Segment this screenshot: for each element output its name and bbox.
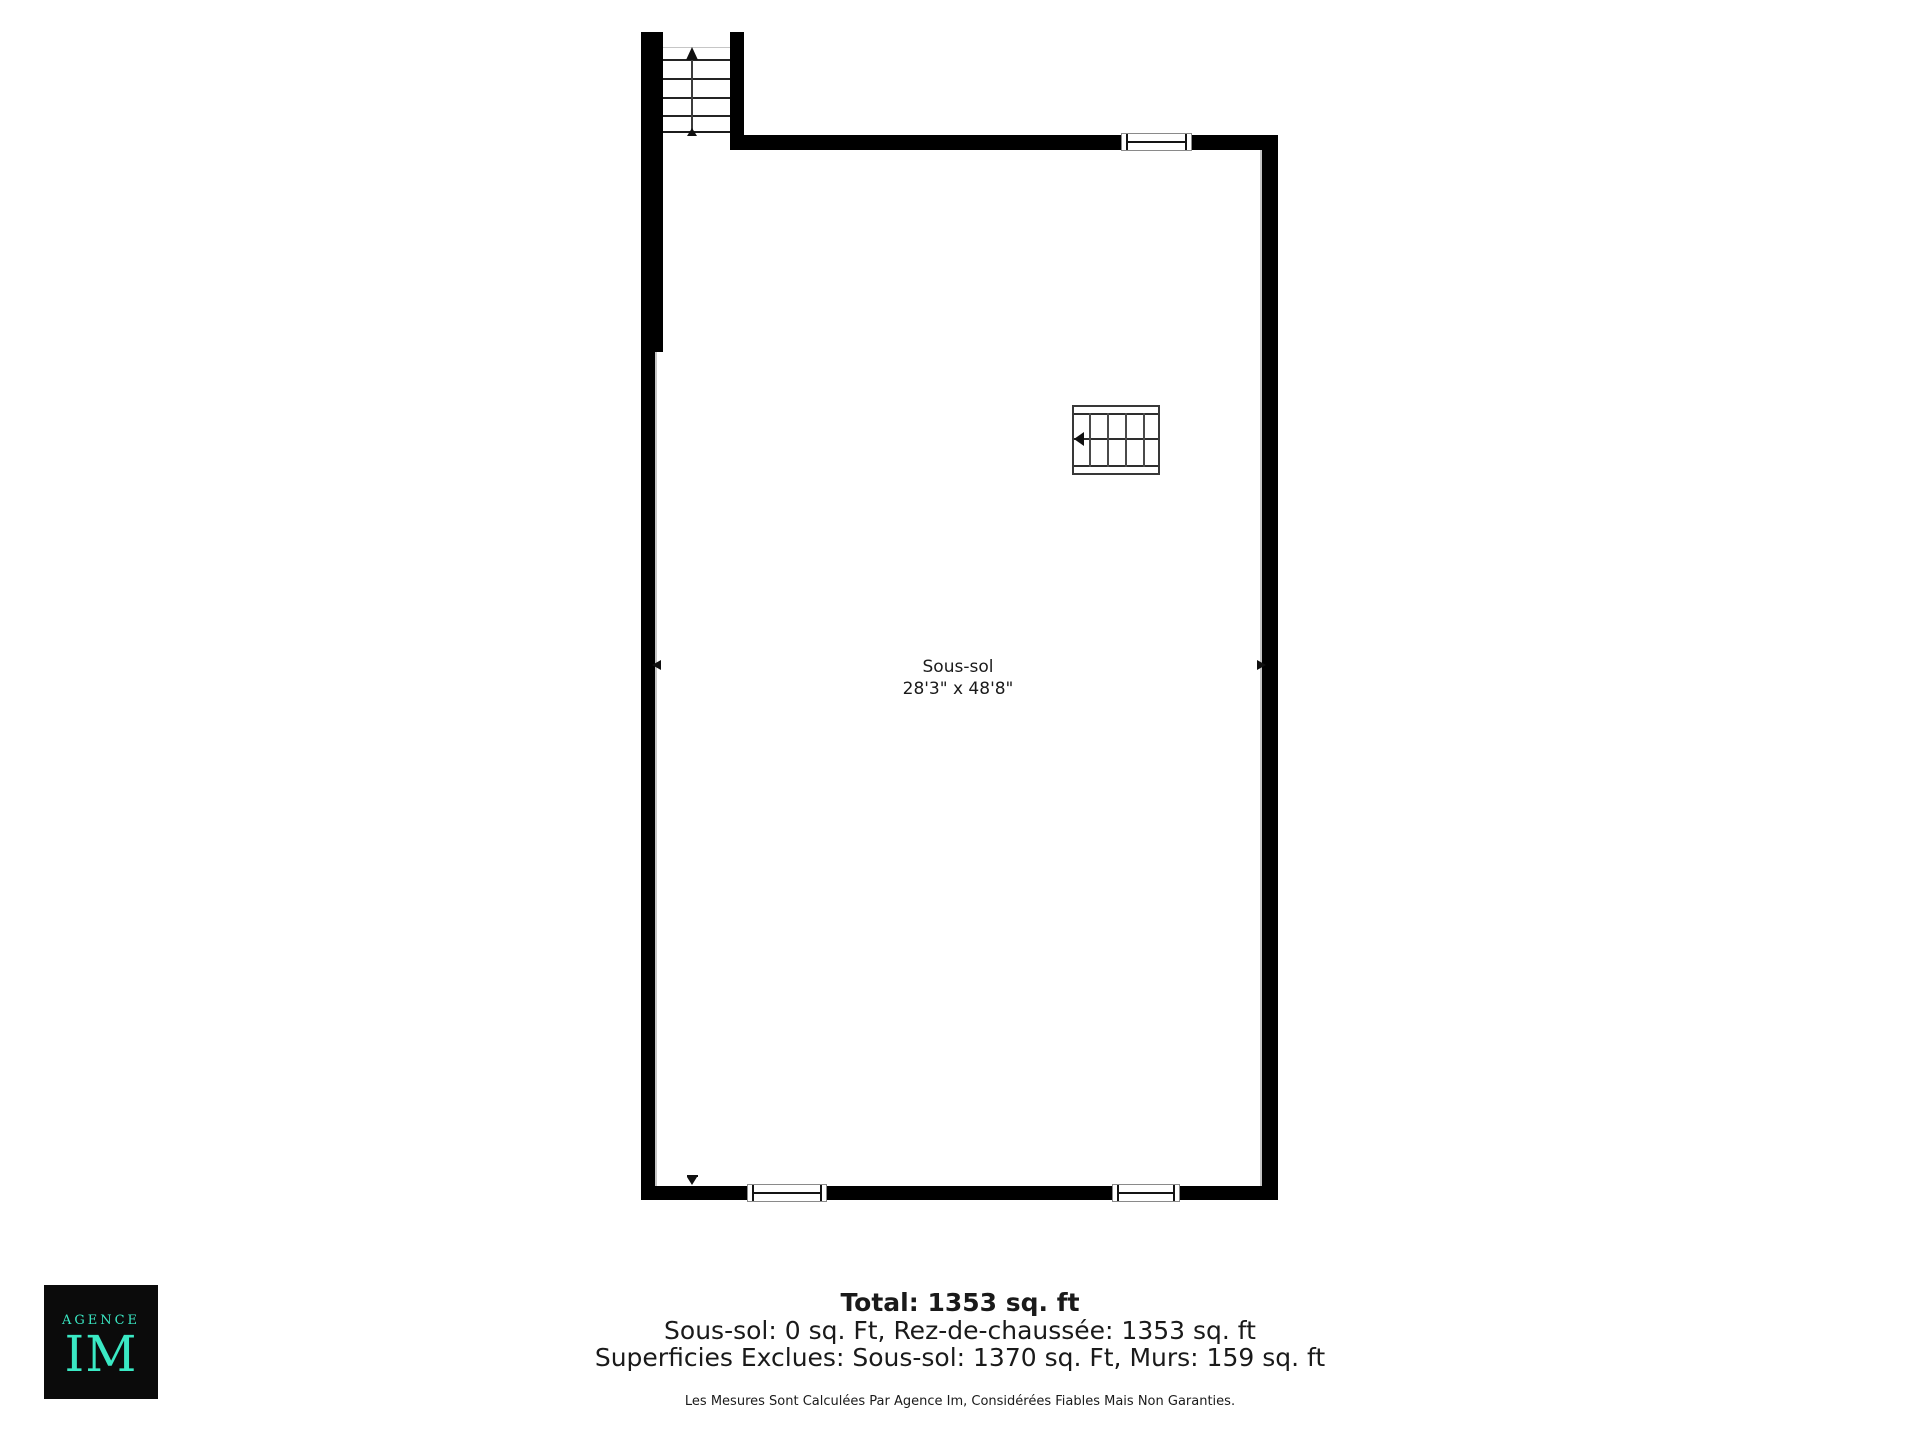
- wall-top: [730, 135, 1278, 150]
- wall-staircase-right: [730, 32, 744, 150]
- stair-landing-line: [1074, 413, 1158, 415]
- area-summary: Total: 1353 sq. ft Sous-sol: 0 sq. Ft, R…: [0, 1288, 1920, 1409]
- floor-plan-page: Sous-sol 28'3" x 48'8" Total: 1353 sq. f…: [0, 0, 1920, 1440]
- room-name: Sous-sol: [758, 656, 1158, 678]
- window-bottom-left: [747, 1184, 827, 1202]
- stair-step: [1107, 413, 1109, 467]
- wall-left: [641, 32, 655, 1200]
- staircase-top-left: [663, 47, 730, 133]
- stair-up-arrow-icon: [686, 47, 698, 60]
- window-frame: [820, 1185, 822, 1201]
- room-label: Sous-sol 28'3" x 48'8": [758, 656, 1158, 700]
- stair-step: [663, 115, 730, 117]
- stair-step: [663, 97, 730, 99]
- wall-bottom: [641, 1186, 1278, 1200]
- staircase-interior: [1072, 405, 1160, 475]
- dimension-marker-left-icon: [652, 660, 661, 670]
- dimension-marker-up-icon: [687, 128, 697, 136]
- window-glass-line: [1119, 1192, 1173, 1194]
- excluded-area-text: Superficies Exclues: Sous-sol: 1370 sq. …: [0, 1344, 1920, 1371]
- room-dimensions: 28'3" x 48'8": [758, 678, 1158, 700]
- window-frame: [1173, 1185, 1175, 1201]
- window-top: [1121, 133, 1192, 151]
- logo-initials: IM: [44, 1328, 158, 1380]
- window-glass-line: [754, 1192, 820, 1194]
- window-bottom-right: [1112, 1184, 1180, 1202]
- wall-left-inner-edge: [655, 352, 657, 1186]
- area-breakdown-text: Sous-sol: 0 sq. Ft, Rez-de-chaussée: 135…: [0, 1317, 1920, 1344]
- total-area-text: Total: 1353 sq. ft: [0, 1288, 1920, 1317]
- stair-direction-line: [691, 51, 693, 132]
- disclaimer-text: Les Mesures Sont Calculées Par Agence Im…: [0, 1394, 1920, 1409]
- stair-landing-line: [1074, 465, 1158, 467]
- stair-step: [1143, 413, 1145, 467]
- wall-left-upper-thick: [655, 32, 663, 352]
- stair-step: [663, 78, 730, 80]
- stair-step: [1089, 413, 1091, 467]
- window-glass-line: [1128, 141, 1185, 143]
- window-frame: [1185, 134, 1187, 150]
- stair-mid-line: [1074, 438, 1158, 440]
- dimension-marker-right-icon: [1257, 660, 1266, 670]
- stair-left-arrow-icon: [1074, 432, 1084, 446]
- dimension-marker-down-icon: [687, 1177, 697, 1185]
- stair-step: [1125, 413, 1127, 467]
- logo-agency-word: AGENCE: [44, 1285, 158, 1328]
- agency-logo: AGENCE IM: [44, 1285, 158, 1399]
